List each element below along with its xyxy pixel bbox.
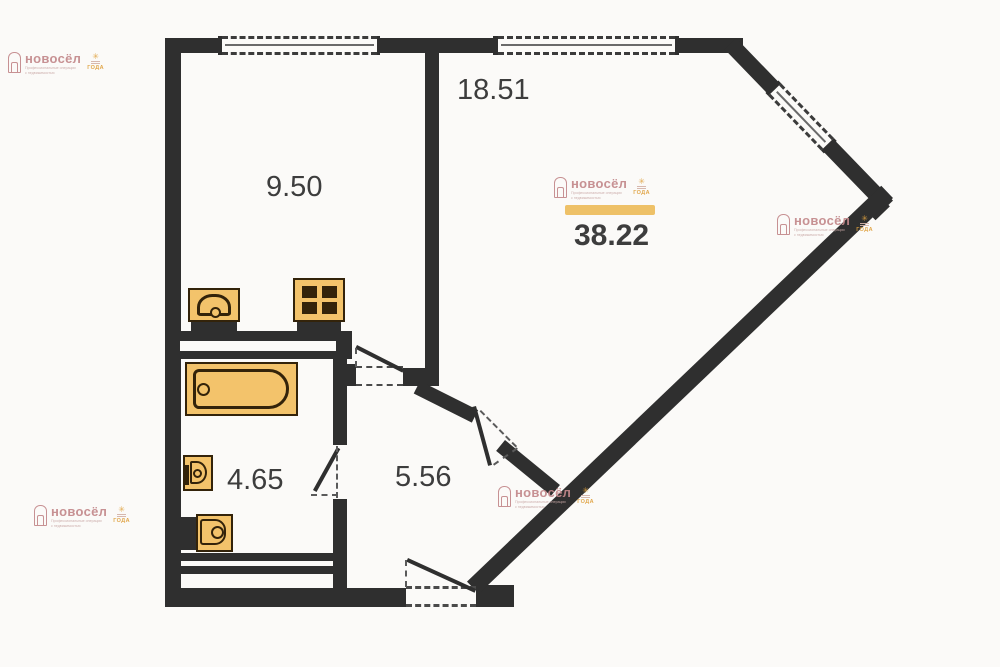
outer-wall-bottom	[165, 588, 407, 607]
badge-line	[117, 516, 126, 517]
wall-bathroom-top	[165, 331, 352, 359]
badge-word: ГОДА	[633, 190, 650, 196]
window-glass-line	[501, 44, 672, 46]
novosel-door-logo-icon	[498, 486, 511, 507]
bathtub-drain	[197, 383, 210, 396]
badge-word: ГОДА	[113, 518, 130, 524]
award-star-icon: ✳	[118, 506, 125, 513]
burner	[302, 302, 317, 314]
wall-niche	[180, 341, 336, 351]
badge-line	[860, 225, 869, 226]
watermark-novosel-center: новосёл Профессиональные операции с недв…	[554, 177, 650, 201]
novosel-door-logo-icon	[8, 52, 21, 73]
room-area-label-950: 9.50	[266, 171, 322, 204]
novosel-door-logo-icon	[777, 214, 790, 235]
outer-wall-left	[165, 38, 181, 607]
award-badge: ✳ ГОДА	[856, 214, 873, 233]
window-glass-line	[776, 91, 826, 143]
badge-line	[91, 61, 100, 62]
badge-word: ГОДА	[577, 499, 594, 505]
watermark-tagline: с недвижимостью	[794, 233, 850, 238]
badge-line	[637, 188, 646, 189]
outer-wall-diagonal-top-right	[724, 38, 893, 212]
door-arc-room950	[355, 348, 357, 367]
room-area-label-1851: 18.51	[457, 74, 530, 107]
burner	[322, 302, 337, 314]
watermark-novosel-right: новосёл Профессиональные операции с недв…	[777, 214, 873, 238]
badge-line	[581, 495, 590, 496]
door-arc-bathroom-h	[311, 494, 338, 496]
watermark-tagline: с недвижимостью	[515, 505, 571, 510]
area-underline-bar	[565, 205, 655, 215]
badge-word: ГОДА	[87, 65, 104, 71]
watermark-tagline: с недвижимостью	[51, 524, 107, 529]
badge-line	[860, 223, 869, 224]
watermark-brand: новосёл	[571, 177, 627, 191]
floor-plan: 18.51 9.50 38.22 4.65 5.56 новосёл Профе…	[0, 0, 1000, 667]
watermark-tagline: с недвижимостью	[25, 71, 81, 76]
stove-icon	[293, 278, 345, 322]
burner	[302, 286, 317, 298]
washbasin-tap	[183, 465, 189, 485]
entrance-door-arc	[405, 560, 407, 587]
partition-diagonal-seg1	[414, 381, 478, 423]
duct-wall-line1	[165, 553, 347, 561]
duct-wall-line2	[180, 566, 340, 574]
watermark-brand: новосёл	[515, 486, 571, 500]
door-leaf-room3822	[472, 406, 492, 466]
window-room-950	[222, 36, 377, 55]
entrance-door-opening	[406, 586, 476, 607]
bathtub-icon	[185, 362, 298, 416]
watermark-brand: новосёл	[794, 214, 850, 228]
badge-line	[91, 63, 100, 64]
sink-drain	[210, 307, 221, 318]
award-star-icon: ✳	[582, 487, 589, 494]
watermark-brand: новосёл	[51, 505, 107, 519]
window-diagonal	[768, 83, 834, 150]
doorpost-hall-left	[333, 364, 356, 386]
watermark-brand: новосёл	[25, 52, 81, 66]
sink-icon	[188, 288, 240, 322]
badge-line	[637, 186, 646, 187]
award-badge: ✳ ГОДА	[633, 177, 650, 196]
toilet-cistern	[181, 517, 196, 550]
watermark-tagline: с недвижимостью	[571, 196, 627, 201]
room-area-label-465: 4.65	[227, 464, 283, 497]
room-area-label-3822: 38.22	[574, 219, 649, 253]
toilet-icon	[196, 514, 233, 552]
award-star-icon: ✳	[861, 215, 868, 222]
badge-word: ГОДА	[856, 227, 873, 233]
award-badge: ✳ ГОДА	[577, 486, 594, 505]
watermark-novosel-bottom-left: новосёл Профессиональные операции с недв…	[34, 505, 130, 529]
novosel-door-logo-icon	[554, 177, 567, 198]
outer-wall-diagonal-right	[467, 186, 893, 594]
toilet-drain	[211, 526, 224, 539]
washbasin-drain	[193, 469, 202, 478]
window-room-1851	[498, 36, 675, 55]
door-arc-bathroom-v	[336, 446, 338, 498]
watermark-novosel-top-left: новосёл Профессиональные операции с недв…	[8, 52, 104, 76]
award-star-icon: ✳	[638, 178, 645, 185]
window-glass-line	[225, 44, 374, 46]
novosel-door-logo-icon	[34, 505, 47, 526]
room-area-label-556: 5.56	[395, 461, 451, 494]
award-badge: ✳ ГОДА	[87, 52, 104, 71]
watermark-novosel-bottom-center: новосёл Профессиональные операции с недв…	[498, 486, 594, 510]
wall-between-rooms	[425, 50, 439, 386]
badge-line	[117, 514, 126, 515]
badge-line	[581, 497, 590, 498]
award-star-icon: ✳	[92, 53, 99, 60]
burner	[322, 286, 337, 298]
washbasin-icon	[183, 455, 213, 491]
award-badge: ✳ ГОДА	[113, 505, 130, 524]
